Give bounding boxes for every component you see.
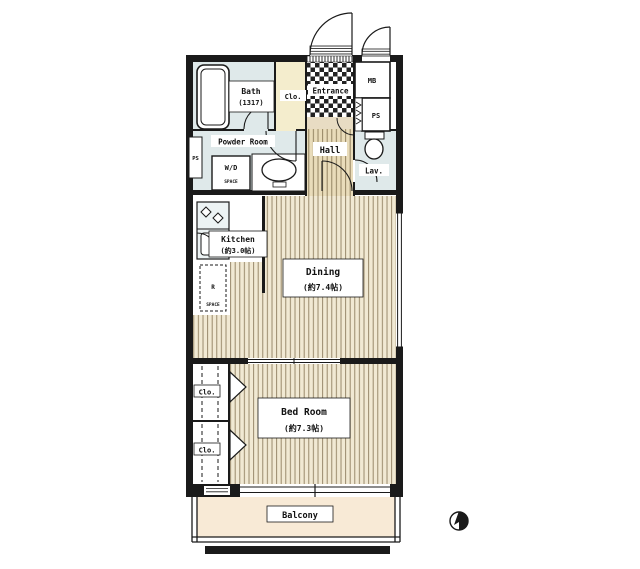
pipe-shaft-right-label: PS xyxy=(372,112,380,120)
kitchen-size-label: (約3.0帖) xyxy=(220,246,255,255)
entrance-label: Entrance xyxy=(312,87,349,96)
bedroom-size-label: (約7.3帖) xyxy=(284,423,324,433)
pipe-shaft-left-label: PS xyxy=(192,156,199,162)
toilet-icon xyxy=(365,132,384,159)
entrance-step xyxy=(307,117,353,129)
entrance-sill xyxy=(307,56,353,62)
top-closet-label: Clo. xyxy=(285,93,302,101)
bedroom-closet-floor xyxy=(193,364,228,484)
meter-box-door-leaf xyxy=(362,49,390,56)
hall-label: Hall xyxy=(320,146,340,156)
pipe-shaft-left: PS xyxy=(189,137,202,178)
refrigerator-sublabel: SPACE xyxy=(206,302,220,308)
north-compass-icon xyxy=(450,511,468,530)
powder-room-label: Powder Room xyxy=(218,138,268,147)
closet-2-label: Clo. xyxy=(199,447,216,455)
balcony-edge-bar xyxy=(205,546,390,554)
closet-1-label: Clo. xyxy=(199,389,216,397)
refrigerator-label: R xyxy=(211,284,215,291)
bedroom-label: Bed Room xyxy=(281,407,327,418)
bath-size-label: (1317) xyxy=(238,99,263,107)
dining-size-label: (約7.4帖) xyxy=(303,282,343,292)
bath-label: Bath xyxy=(241,87,260,96)
small-window xyxy=(204,486,230,495)
meter-box-area xyxy=(355,62,390,131)
washer-dryer-sublabel: SPACE xyxy=(224,179,238,185)
dining-window xyxy=(396,213,403,347)
vanity-sink-icon xyxy=(252,154,305,191)
entrance-door-leaf xyxy=(310,46,352,54)
balcony-label: Balcony xyxy=(282,511,318,521)
meter-box-label: MB xyxy=(368,77,376,85)
lavatory-label: Lav. xyxy=(365,167,383,176)
dining-label: Dining xyxy=(306,267,341,278)
kitchen-label: Kitchen xyxy=(221,234,255,244)
floor-plan-image: PS Bath (1317) Clo. Entrance MB PS Powde… xyxy=(0,0,640,569)
washer-dryer-label: W/D xyxy=(225,164,238,172)
